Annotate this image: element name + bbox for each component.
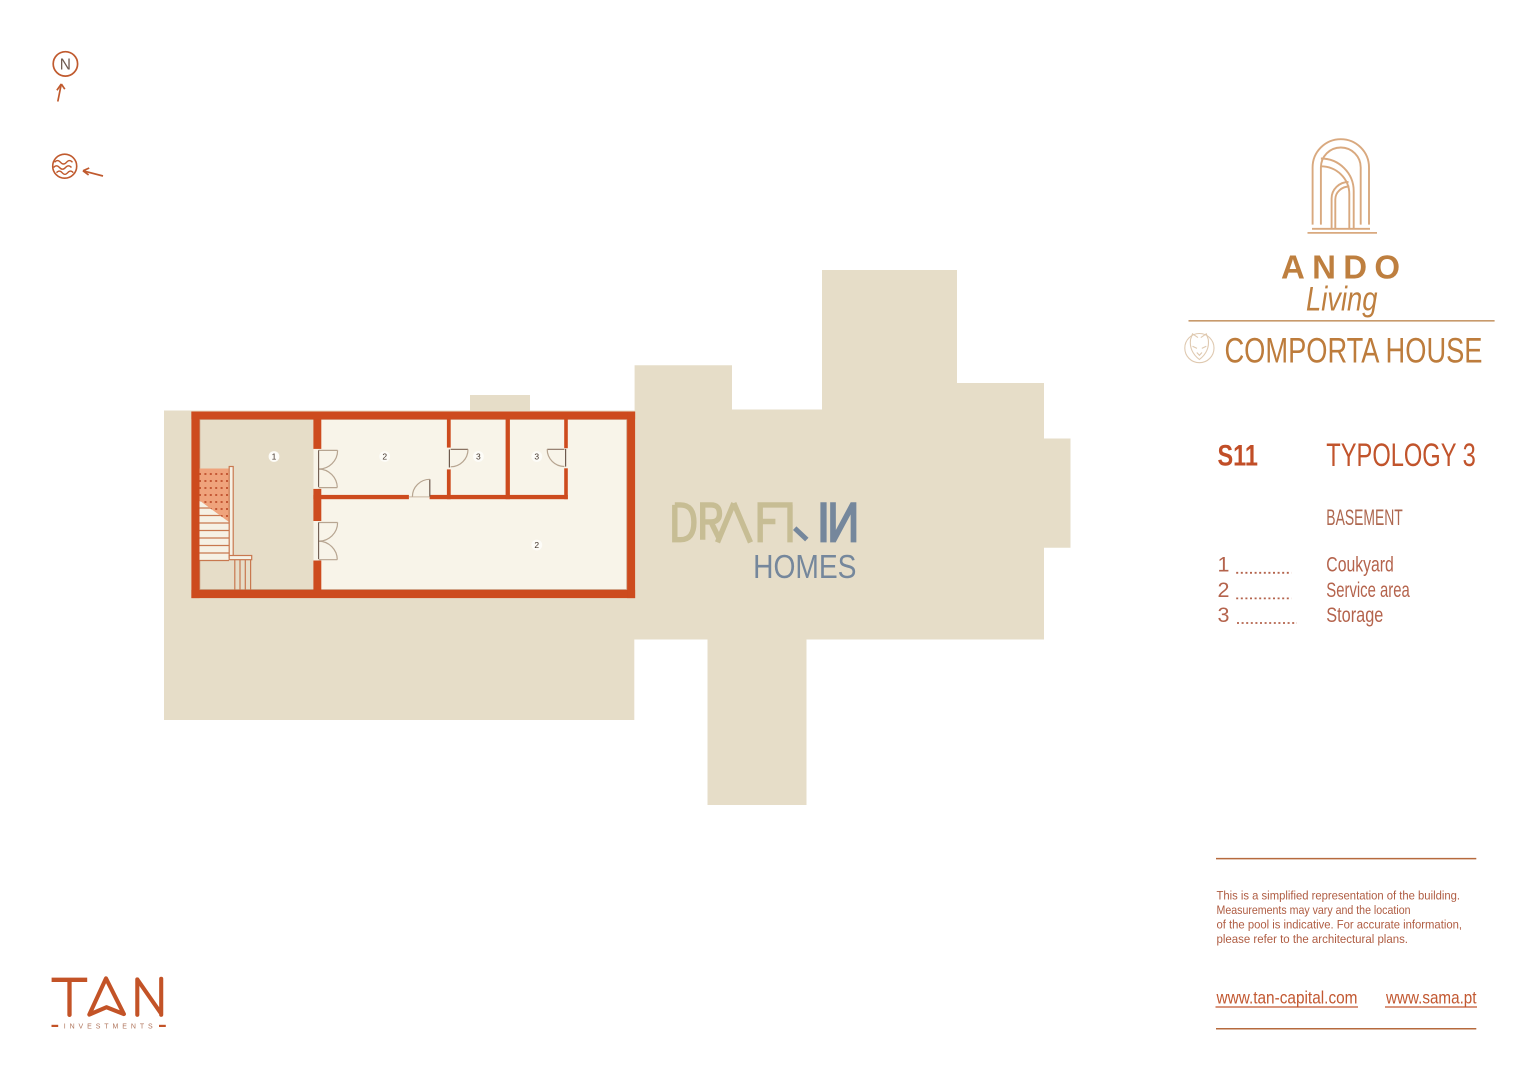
svg-text:S11: S11 — [1218, 440, 1259, 473]
svg-text:TYPOLOGY 3: TYPOLOGY 3 — [1326, 437, 1476, 473]
svg-text:This is a simplified represent: This is a simplified representation of t… — [1217, 888, 1461, 902]
svg-text:N: N — [60, 56, 71, 73]
svg-text:2: 2 — [1218, 578, 1230, 602]
svg-text:HOMES: HOMES — [753, 549, 856, 586]
svg-text:1: 1 — [272, 452, 277, 462]
svg-text:BASEMENT: BASEMENT — [1326, 505, 1403, 530]
svg-text:3: 3 — [1218, 603, 1230, 627]
svg-text:3: 3 — [476, 452, 481, 462]
svg-text:INVESTMENTS: INVESTMENTS — [64, 1024, 153, 1031]
svg-text:www.sama.pt: www.sama.pt — [1385, 988, 1476, 1008]
svg-text:please refer to the architectu: please refer to the architectural plans. — [1217, 932, 1409, 946]
svg-text:of the pool is indicative. For: of the pool is indicative. For accurate … — [1217, 918, 1463, 932]
svg-text:3: 3 — [534, 452, 539, 462]
svg-text:2: 2 — [382, 452, 387, 462]
svg-text:Living: Living — [1306, 281, 1378, 319]
svg-text:www.tan-capital.com: www.tan-capital.com — [1216, 988, 1358, 1008]
svg-text:1: 1 — [1218, 552, 1230, 576]
svg-text:Storage: Storage — [1326, 603, 1383, 627]
svg-text:Service area: Service area — [1326, 578, 1410, 602]
svg-text:2: 2 — [534, 540, 539, 550]
svg-text:Coukyard: Coukyard — [1326, 552, 1394, 576]
svg-text:COMPORTA HOUSE: COMPORTA HOUSE — [1225, 330, 1483, 370]
svg-text:Measurements may vary and the: Measurements may vary and the location — [1217, 903, 1411, 917]
